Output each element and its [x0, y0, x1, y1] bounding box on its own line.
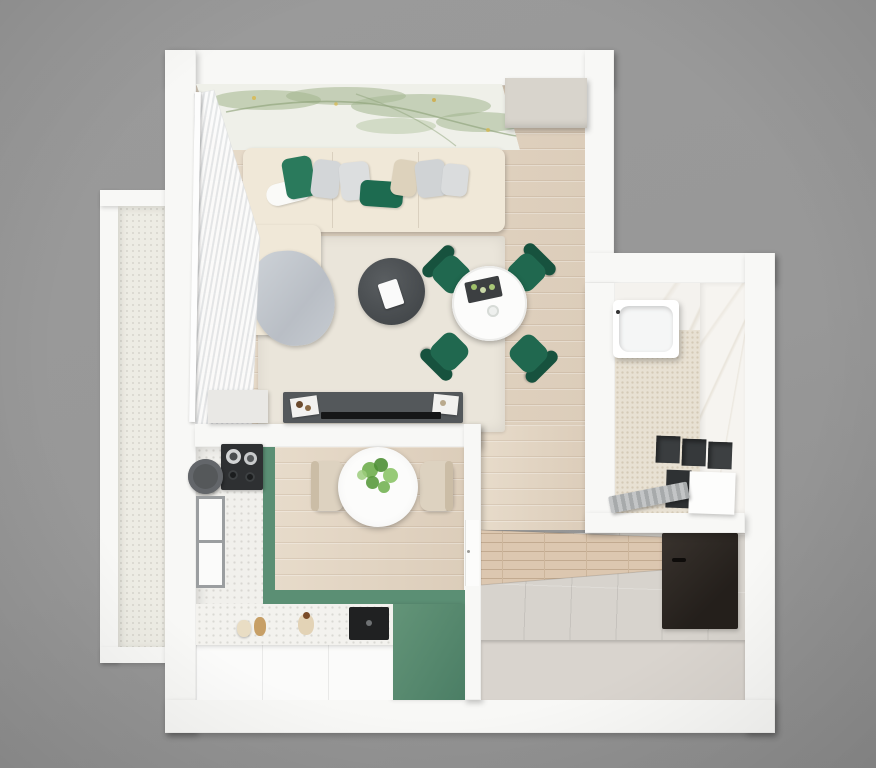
faucet [366, 620, 372, 626]
tv [321, 412, 441, 419]
pot [226, 449, 241, 464]
decor-item [305, 405, 311, 411]
vanity-white [688, 471, 735, 515]
bathtub-basin [619, 306, 673, 352]
wall-shelf-box [656, 436, 681, 464]
door-handle [467, 550, 470, 553]
bathtub-drain [616, 310, 620, 314]
kitchen-chair [420, 461, 453, 511]
balcony-wall-left [100, 190, 118, 663]
wall-outer-right [745, 253, 775, 733]
counter-jar [254, 617, 266, 636]
wall-bottom [165, 700, 775, 733]
counter-green-side-panel [393, 604, 465, 700]
wall-bath-bottom [585, 513, 745, 533]
sofa-pillow-gray [310, 158, 342, 199]
counter-green-band-bottom [263, 590, 465, 604]
wall-shelf-box [708, 442, 733, 470]
plant-leaf [378, 481, 390, 493]
kitchen-cabinet-front [196, 645, 393, 700]
counter-jar [237, 620, 251, 637]
pot [244, 452, 257, 465]
hallway-bottom-wall-face [481, 640, 745, 700]
floor-plan-render [0, 0, 876, 768]
glass-vase [487, 305, 499, 317]
wardrobe-handle [672, 558, 686, 562]
balcony-floor [118, 206, 165, 647]
decor-item [296, 401, 303, 408]
sofa-pillow-gray [440, 163, 469, 198]
hall-wardrobe [662, 533, 738, 629]
closet [505, 78, 587, 128]
decor-item [440, 400, 446, 406]
media-cabinet [208, 390, 268, 423]
wall-bath-left [585, 283, 615, 530]
tray-fruit [471, 284, 477, 290]
window-bar [198, 540, 223, 543]
counter-green-band-left [263, 447, 275, 592]
corridor-floor [481, 425, 585, 530]
wall-shelf-box [682, 439, 707, 467]
burner [245, 472, 255, 482]
round-sink [188, 459, 223, 494]
kitchen-door [465, 520, 479, 586]
wall-living-right [585, 50, 614, 285]
tray-fruit [480, 287, 486, 293]
plant-leaf [357, 470, 367, 480]
jar-lid [303, 612, 310, 619]
sheer-curtain [194, 88, 268, 432]
tray-fruit [489, 284, 495, 290]
burner [228, 470, 238, 480]
